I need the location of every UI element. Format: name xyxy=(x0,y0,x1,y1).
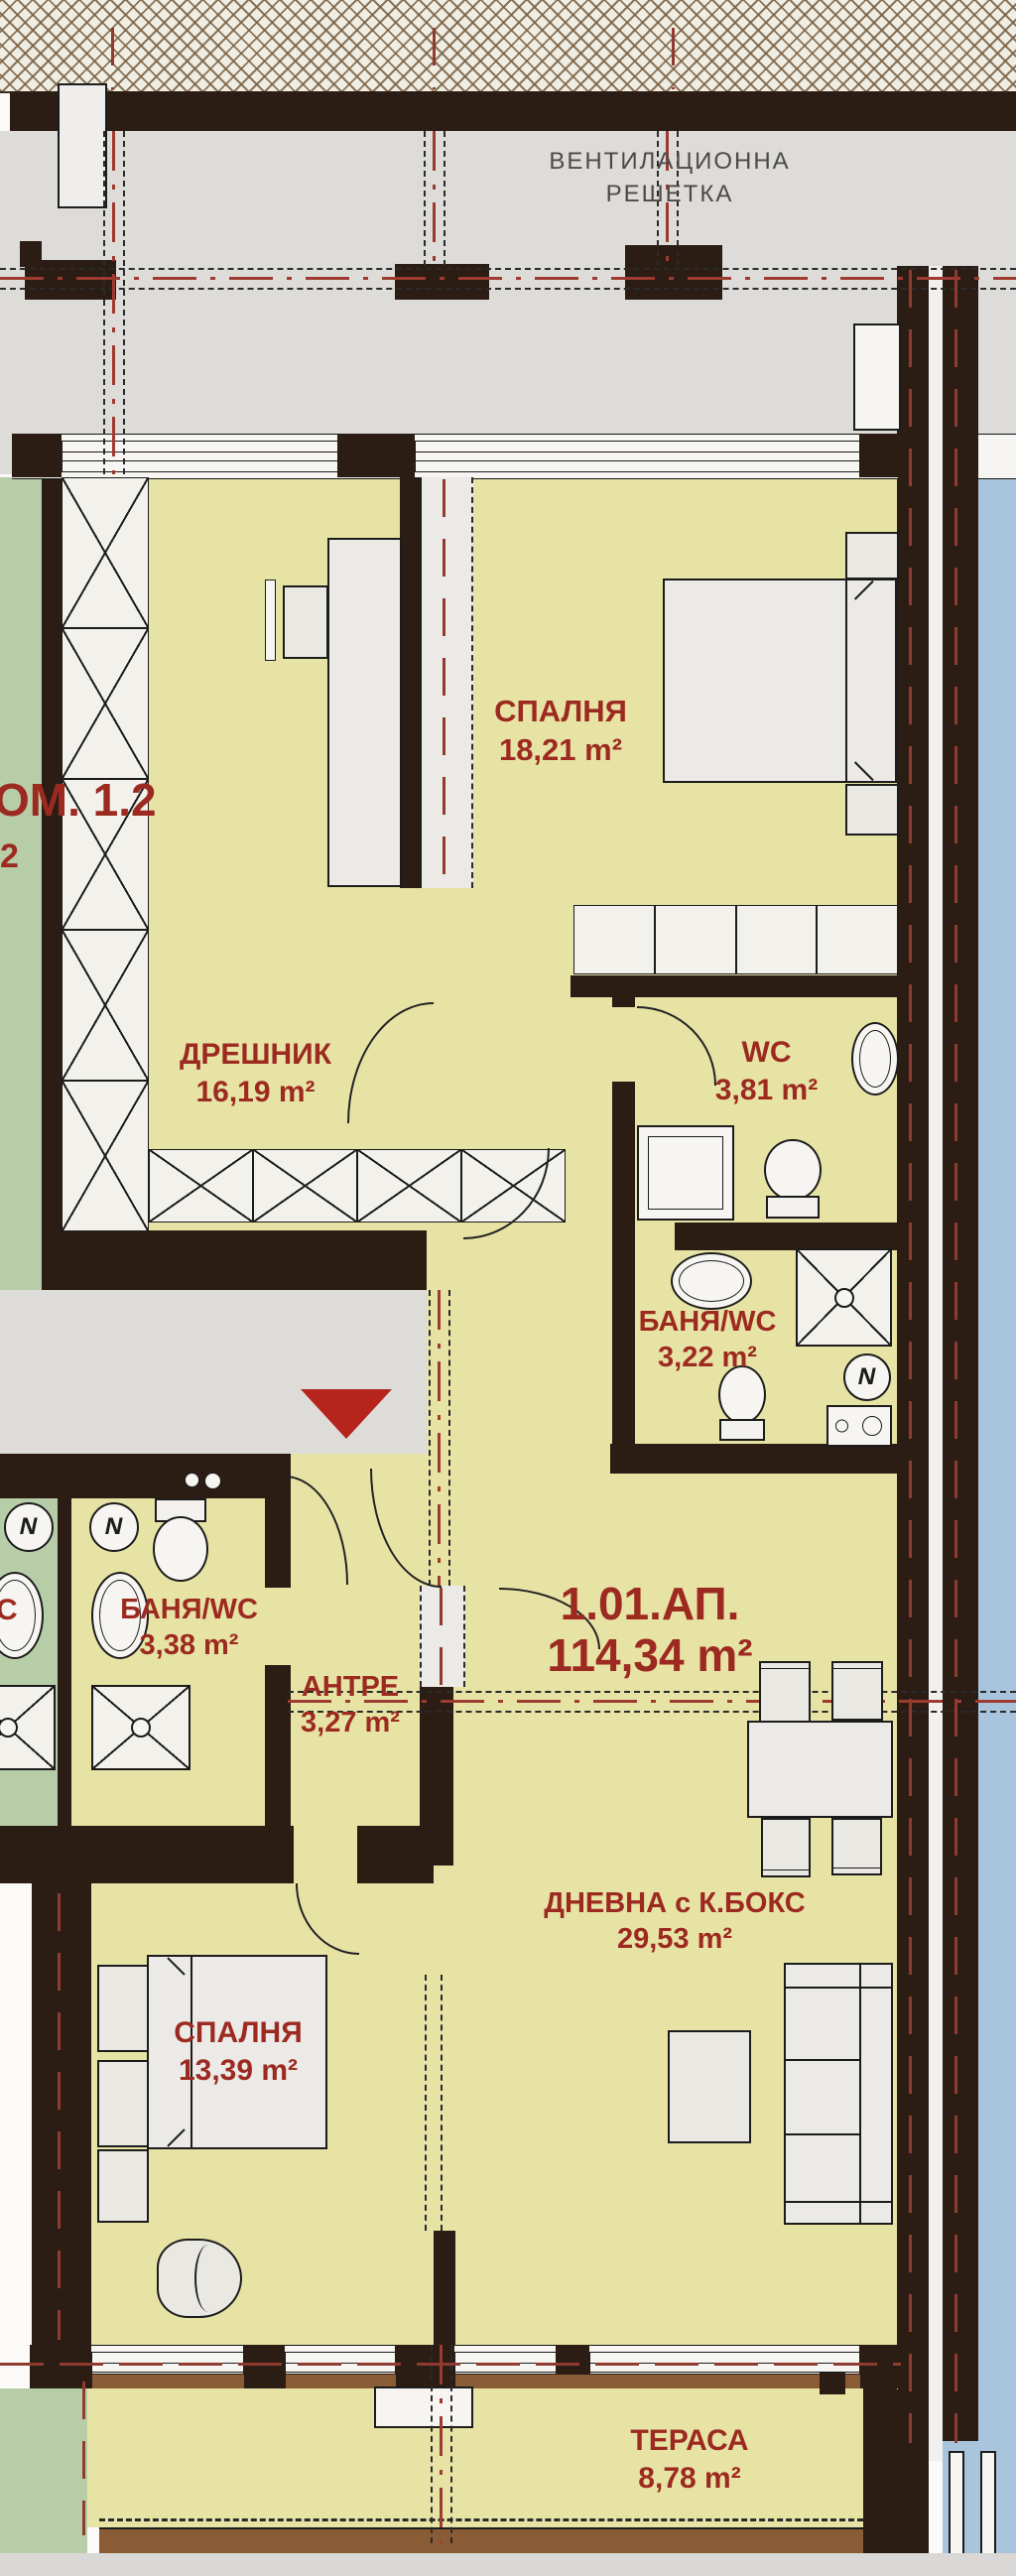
axis-line-vertical-bottom xyxy=(431,2345,452,2543)
bedroom2-living-sliding-door xyxy=(441,1975,443,2231)
nightstand-icon xyxy=(97,2060,149,2147)
railing-post xyxy=(949,2451,964,2562)
entry-duct-axis-red xyxy=(440,1588,443,1685)
adjacent-bath-fragment: C xyxy=(0,1592,32,1629)
railing-top-line xyxy=(99,2518,863,2521)
toilet-icon xyxy=(762,1139,824,1219)
sink-icon xyxy=(671,1252,752,1310)
adjacent-room-1-2 xyxy=(0,477,42,1335)
room-label-entry: АНТРЕ 3,27 m² xyxy=(281,1669,420,1741)
axis-red-east-inner xyxy=(909,270,912,2443)
wc-bath-divider xyxy=(675,1223,898,1250)
wc-west-wall xyxy=(612,1082,635,1454)
toilet-icon xyxy=(716,1365,768,1441)
washing-machine-icon xyxy=(826,1405,892,1447)
room-label-terrace: ТЕРАСА 8,78 m² xyxy=(590,2422,789,2497)
east-wall-outer xyxy=(943,266,978,2441)
facade-pier xyxy=(337,434,415,477)
bedroom2-north-wall-left xyxy=(0,1826,294,1883)
east-wall-inner xyxy=(897,266,929,2576)
axis-red-west-lower xyxy=(58,1893,61,2340)
north-facade-right-segment xyxy=(978,434,1016,479)
bedroom2-north-wall-right xyxy=(357,1826,434,1883)
shower-icon xyxy=(796,1248,892,1347)
cabinet-icon xyxy=(97,2149,149,2223)
room-label-living: ДНЕВНА с К.БОКС 29,53 m² xyxy=(511,1885,838,1958)
adjacent-building-hatch xyxy=(0,0,1016,93)
room-label-bath-small: БАНЯ/WC 3,22 m² xyxy=(623,1304,792,1376)
chair-icon xyxy=(831,1661,883,1721)
axis-red-terrace-left xyxy=(82,2382,85,2535)
armchair-icon xyxy=(157,2239,242,2318)
bedroom1-dressing-wall xyxy=(400,477,420,888)
bed-icon xyxy=(663,579,897,783)
duct-axis-red xyxy=(443,479,445,886)
water-heater-icon: N xyxy=(4,1502,54,1552)
sofa-icon xyxy=(784,1963,893,2225)
chair-back-icon xyxy=(265,580,276,661)
downspout xyxy=(820,2373,845,2394)
facade-pier xyxy=(12,434,62,477)
washing-machine-icon xyxy=(637,1125,734,1221)
toilet-icon xyxy=(151,1498,210,1582)
facade-pilaster xyxy=(58,83,107,208)
west-party-wall-upper xyxy=(42,477,62,1335)
facade-pier xyxy=(859,434,929,477)
axis-red-east-outer xyxy=(954,270,957,2443)
chair-icon xyxy=(761,1818,811,1877)
window xyxy=(415,441,861,472)
axis-line-vertical xyxy=(424,131,445,266)
dining-table-icon xyxy=(747,1721,893,1818)
room-label-wc: WC 3,81 m² xyxy=(695,1034,838,1108)
wc-west-wall-upper xyxy=(612,997,635,1007)
faucet-pair-icon xyxy=(185,1473,230,1488)
shower-icon xyxy=(91,1685,190,1770)
coffee-table-icon xyxy=(668,2030,751,2143)
axis-tick xyxy=(111,28,114,89)
bedroom1-south-wall xyxy=(571,975,898,997)
wardrobe-icon xyxy=(62,477,149,1231)
dressing-south-wall xyxy=(62,1230,427,1290)
adjacent-area-fragment: 2 xyxy=(0,836,40,878)
bedroom2-living-wall xyxy=(434,2231,455,2347)
adjacent-terrace-right xyxy=(978,477,1016,2441)
apartment-label: 1.01.АП. 114,34 m² xyxy=(501,1578,799,1682)
axis-line-horizontal xyxy=(0,268,1016,290)
axis-tick xyxy=(433,28,436,89)
window-sill xyxy=(91,2374,245,2389)
chair-icon xyxy=(831,1818,882,1875)
ground-strip xyxy=(0,2553,1016,2576)
axis-red-south-facade xyxy=(0,2363,901,2366)
sink-icon xyxy=(851,1022,899,1095)
floor-plan: N N N xyxy=(0,0,1016,2576)
vent-duct-strip xyxy=(420,477,473,888)
adjacent-terrace-left xyxy=(0,2388,87,2576)
terrace-east-wall xyxy=(863,2345,897,2576)
ventilation-grille-icon xyxy=(853,323,901,431)
facade-pier xyxy=(243,2345,285,2388)
axis-line-vertical xyxy=(103,131,125,474)
pocket-south-wall xyxy=(0,1454,291,1498)
expansion-joint xyxy=(929,266,943,2461)
water-heater-icon: N xyxy=(843,1353,891,1401)
top-exterior-wall xyxy=(10,91,1016,131)
bath-small-south-wall xyxy=(610,1444,898,1474)
room-label-dressing: ДРЕШНИК 16,19 m² xyxy=(144,1036,367,1110)
desk-icon xyxy=(327,538,402,887)
nightstand-icon xyxy=(845,784,899,836)
room-label-bedroom-1: СПАЛНЯ 18,21 m² xyxy=(437,693,685,770)
adjacent-room-label: ОМ. 1.2 xyxy=(0,772,222,830)
window-sill xyxy=(454,2374,861,2389)
water-heater-icon: N xyxy=(89,1502,139,1552)
ventilation-grille-note: ВЕНТИЛАЦИОННА РЕШЕТКА xyxy=(496,145,843,210)
bath-divider-wall xyxy=(58,1498,71,1826)
room-label-bath-main: БАНЯ/WC 3,38 m² xyxy=(102,1592,276,1664)
axis-tick xyxy=(672,28,675,89)
west-exterior-wall-lower xyxy=(32,1883,91,2347)
closet-row-icon xyxy=(573,905,898,974)
shower-icon xyxy=(0,1685,56,1770)
nightstand-icon xyxy=(845,532,899,580)
desk-chair-icon xyxy=(283,585,328,659)
room-label-bedroom-2: СПАЛНЯ 13,39 m² xyxy=(144,2014,332,2089)
nightstand-icon xyxy=(97,1965,149,2052)
railing-post xyxy=(980,2451,996,2562)
entry-duct-strip xyxy=(420,1586,465,1687)
terrace-ac-unit xyxy=(374,2386,473,2428)
entrance-arrow-icon xyxy=(301,1389,392,1439)
bedroom2-living-sliding-door xyxy=(425,1975,427,2231)
